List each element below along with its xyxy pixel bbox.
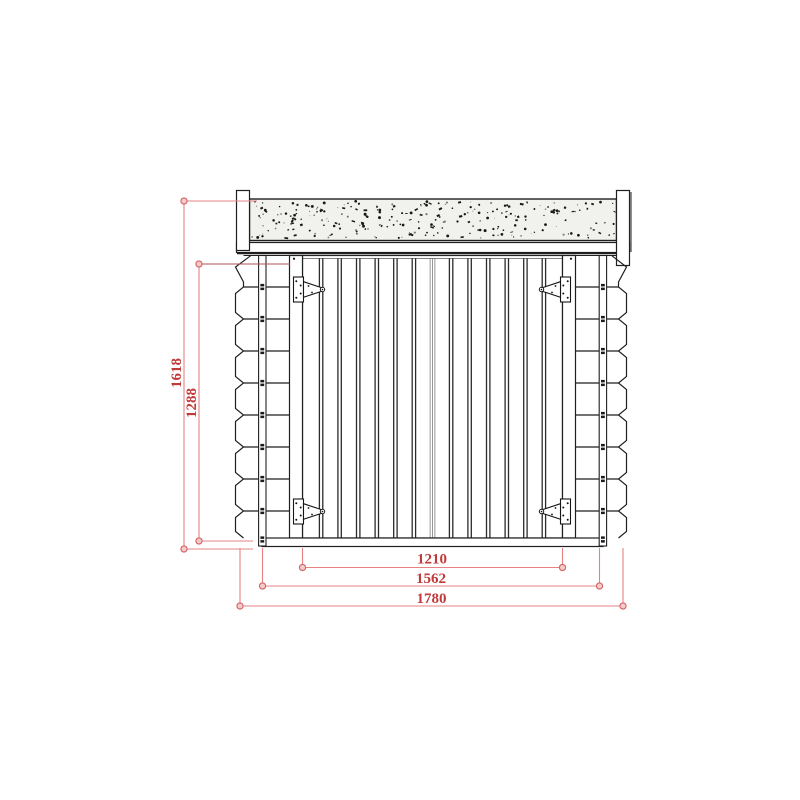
jamb-screw-right (570, 258, 572, 260)
shed-front-elevation: 1618 1288 1210 1562 1780 (0, 0, 800, 800)
base-board (262, 538, 603, 547)
roof-edge-board-right (617, 191, 630, 266)
roof (237, 191, 632, 266)
roof-covering (250, 199, 617, 241)
dim-label-door-width: 1210 (417, 552, 447, 568)
roof-edge-board-left (237, 191, 250, 251)
jamb-screw-left (293, 258, 295, 260)
corner-trim-left (259, 256, 266, 547)
doors (290, 256, 576, 539)
dim-label-roof-width: 1780 (417, 591, 447, 607)
dim-label-wall-width: 1562 (416, 571, 446, 587)
dim-label-total-height: 1618 (169, 358, 185, 388)
roof-fascia-board (237, 243, 630, 253)
drawing-canvas: 1618 1288 1210 1562 1780 (0, 0, 800, 800)
corner-trim-right (599, 256, 606, 547)
dim-label-wall-height: 1288 (184, 388, 200, 418)
